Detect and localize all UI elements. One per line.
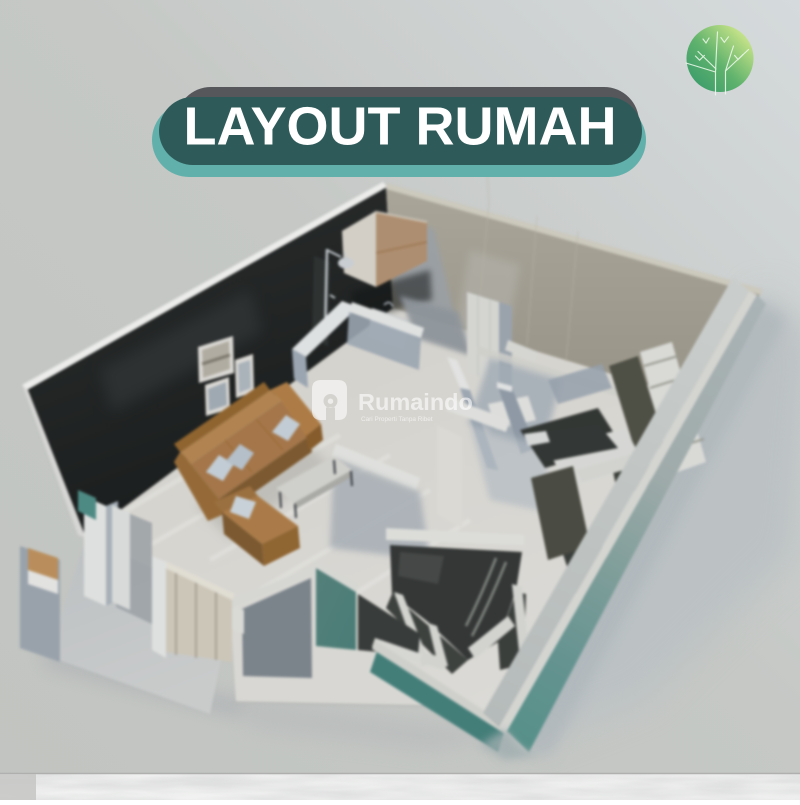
svg-text:Cari Properti Tanpa Ribet: Cari Properti Tanpa Ribet xyxy=(361,416,433,423)
svg-text:LAYOUT RUMAH: LAYOUT RUMAH xyxy=(183,97,616,157)
svg-text:Rumaindo: Rumaindo xyxy=(358,389,473,415)
